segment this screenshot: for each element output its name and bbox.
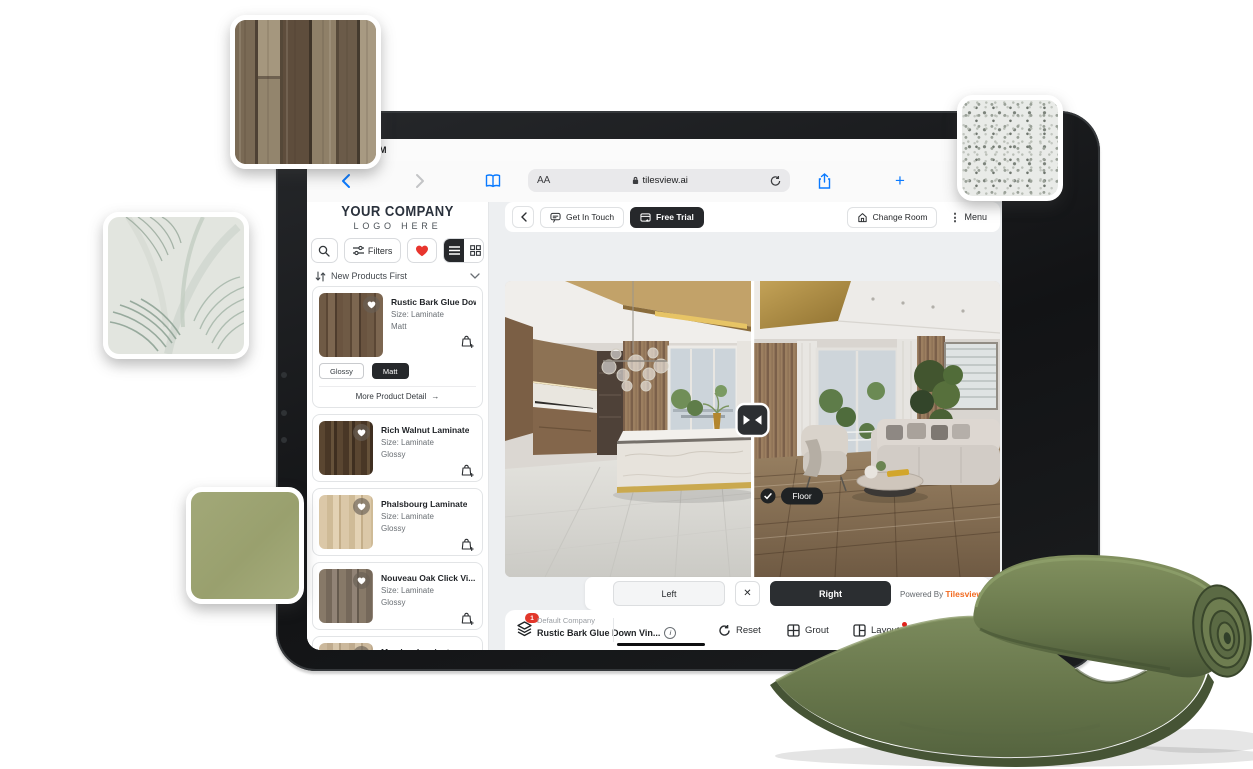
product-size: Size: Laminate: [381, 438, 469, 447]
heart-icon: [367, 301, 376, 309]
stage: PM AA tilesview.ai: [0, 0, 1253, 769]
product-thumbnail[interactable]: [319, 421, 373, 475]
share-icon[interactable]: [812, 169, 836, 193]
url-text: tilesview.ai: [642, 175, 687, 186]
url-bar[interactable]: AA tilesview.ai: [528, 169, 790, 192]
product-size: Size: Laminate: [381, 586, 475, 595]
product-finish: Matt: [391, 322, 476, 331]
bag-plus-icon: [461, 612, 474, 625]
product-thumbnail[interactable]: [319, 495, 373, 549]
grid-view-button[interactable]: [468, 238, 483, 263]
filters-label: Filters: [368, 246, 393, 256]
filters-icon: [353, 245, 364, 256]
product-finish: Glossy: [381, 598, 475, 607]
tablet-side-button: [281, 372, 287, 378]
logo-line2: LOGO HERE: [312, 221, 484, 232]
lock-icon: [632, 176, 639, 185]
view-toggle: [443, 238, 484, 263]
product-thumbnail[interactable]: [319, 293, 383, 357]
logo-line1: YOUR COMPANY: [316, 204, 479, 220]
bag-plus-icon: [461, 335, 474, 348]
tablet-side-button: [281, 410, 287, 416]
bag-plus-icon: [461, 538, 474, 551]
favorite-toggle[interactable]: [353, 498, 370, 515]
room-icon: [857, 212, 868, 223]
product-name: Meadow Laminate: [381, 647, 454, 650]
terrazzo-swatch: [957, 95, 1063, 201]
list-view-button[interactable]: [444, 238, 463, 263]
product-finish: Glossy: [381, 450, 469, 459]
product-name: Phalsbourg Laminate: [381, 499, 467, 509]
product-card[interactable]: Meadow Laminate Size: Laminate: [312, 636, 483, 650]
favorite-toggle[interactable]: [353, 572, 370, 589]
favorite-toggle[interactable]: [353, 646, 370, 650]
product-card[interactable]: Phalsbourg Laminate Size: Laminate Gloss…: [312, 488, 483, 556]
product-card[interactable]: Rich Walnut Laminate Size: Laminate Glos…: [312, 414, 483, 482]
collapse-sidebar-button[interactable]: [512, 206, 534, 228]
trial-card-icon: [640, 212, 651, 223]
room-comparison-viewer: Floor: [505, 281, 1000, 577]
favorite-toggle[interactable]: [353, 424, 370, 441]
compare-slider-handle[interactable]: [737, 404, 769, 436]
wood-plank-swatch: [230, 15, 381, 169]
sort-label: New Products First: [331, 271, 407, 281]
kebab-menu-icon: ⋮: [949, 211, 960, 224]
chevron-down-icon: [470, 273, 480, 279]
add-to-bag-button[interactable]: [461, 335, 474, 348]
filters-button[interactable]: Filters: [344, 238, 402, 263]
product-name: Rustic Bark Glue Dow...: [391, 297, 476, 307]
product-thumbnail[interactable]: [319, 569, 373, 623]
room-scene: Floor: [505, 281, 1000, 577]
product-list: Rustic Bark Glue Dow... Size: Laminate M…: [312, 286, 483, 650]
search-button[interactable]: [311, 238, 338, 263]
floor-tag-label: Floor: [792, 491, 812, 501]
add-to-bag-button[interactable]: [461, 612, 474, 625]
product-name: Nouveau Oak Click Vi...: [381, 573, 475, 583]
browser-back-icon[interactable]: [333, 169, 357, 193]
new-tab-icon[interactable]: +: [888, 169, 912, 193]
floor-surface-tag[interactable]: Floor: [761, 488, 824, 505]
more-product-detail-link[interactable]: More Product Detail →: [319, 386, 476, 401]
add-to-bag-button[interactable]: [461, 464, 474, 477]
browser-forward-icon[interactable]: [408, 169, 432, 193]
toolbar-divider: [613, 618, 614, 642]
reset-button[interactable]: Reset: [718, 610, 761, 650]
sort-icon: [315, 271, 326, 282]
layers-icon[interactable]: [516, 620, 533, 642]
product-name: Rich Walnut Laminate: [381, 425, 469, 435]
drag-indicator[interactable]: [617, 643, 705, 646]
product-size: Size: Laminate: [381, 512, 467, 521]
add-to-bag-button[interactable]: [461, 538, 474, 551]
grid-view-icon: [470, 245, 481, 256]
reload-icon[interactable]: [770, 175, 781, 187]
free-trial-button[interactable]: Free Trial: [630, 207, 704, 228]
menu-button[interactable]: ⋮ Menu: [943, 211, 993, 224]
product-card[interactable]: Rustic Bark Glue Dow... Size: Laminate M…: [312, 286, 483, 408]
status-bar: PM: [307, 139, 1002, 161]
selected-product[interactable]: Rustic Bark Glue Down Vin... i: [537, 627, 676, 639]
sort-dropdown[interactable]: New Products First: [315, 269, 480, 283]
product-size: Size: Laminate: [391, 310, 476, 319]
green-material-swatch: [186, 487, 304, 604]
heart-icon: [357, 429, 366, 437]
tablet-side-button: [281, 437, 287, 443]
chevron-left-icon: [520, 212, 527, 222]
chat-icon: [550, 212, 561, 223]
finish-option-matt[interactable]: Matt: [372, 363, 409, 379]
heart-icon: [415, 245, 429, 257]
company-logo: YOUR COMPANY LOGO HERE: [307, 204, 488, 232]
compare-left-button[interactable]: Left: [613, 581, 725, 606]
reset-icon: [718, 624, 731, 637]
heart-icon: [357, 503, 366, 511]
bag-plus-icon: [461, 464, 474, 477]
app-header: Get In Touch Free Trial Change Room ⋮: [505, 202, 1000, 232]
product-thumbnail[interactable]: [319, 643, 373, 650]
search-icon: [318, 245, 330, 257]
carpet-roll-image: [770, 543, 1253, 769]
product-card[interactable]: Nouveau Oak Click Vi... Size: Laminate G…: [312, 562, 483, 630]
bookmarks-icon[interactable]: [481, 169, 505, 193]
product-sidebar: YOUR COMPANY LOGO HERE Filters: [307, 202, 489, 650]
arrow-right-icon: →: [431, 392, 439, 401]
company-name: Default Company: [537, 616, 595, 625]
product-finish: Glossy: [381, 524, 467, 533]
reader-mode-label[interactable]: AA: [537, 175, 550, 186]
finish-option-glossy[interactable]: Glossy: [319, 363, 364, 379]
heart-icon: [357, 577, 366, 585]
leaf-wallpaper-swatch: [103, 212, 249, 359]
favorite-toggle[interactable]: [363, 296, 380, 313]
compare-close-button[interactable]: ✕: [735, 581, 760, 606]
change-room-button[interactable]: Change Room: [847, 207, 938, 228]
favorites-button[interactable]: [407, 238, 437, 263]
info-icon[interactable]: i: [664, 627, 676, 639]
get-in-touch-button[interactable]: Get In Touch: [540, 207, 624, 228]
list-view-icon: [449, 246, 460, 255]
